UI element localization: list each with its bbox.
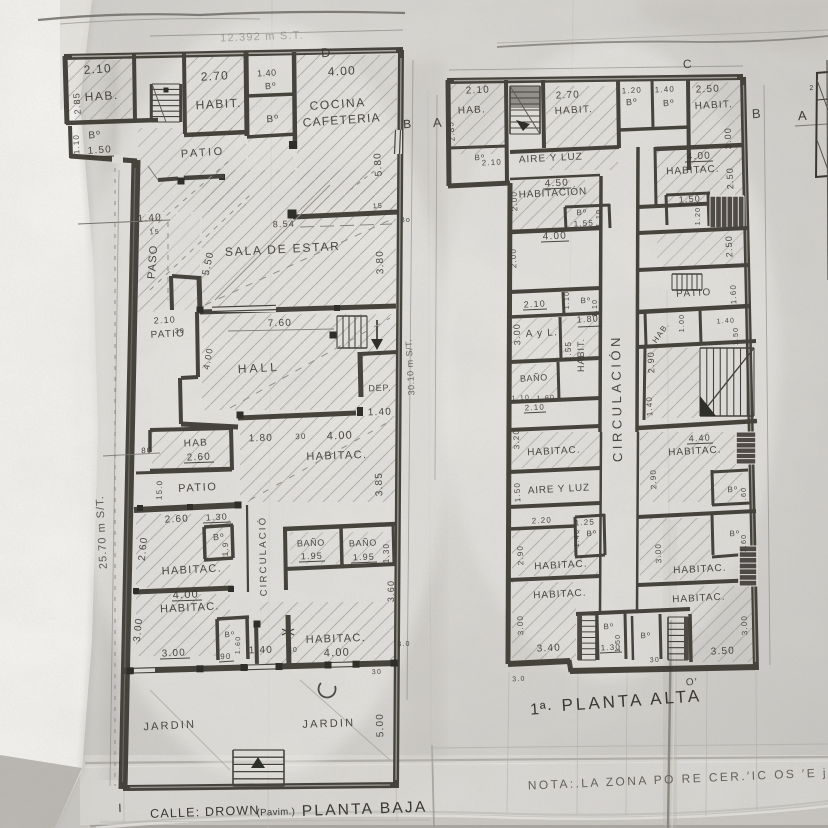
svg-text:1.10: 1.10 — [72, 134, 82, 155]
svg-text:1.50: 1.50 — [733, 327, 740, 345]
svg-text:1.40: 1.40 — [717, 318, 736, 326]
svg-text:HABIT.: HABIT. — [694, 99, 733, 112]
svg-text:Bº: Bº — [663, 98, 675, 109]
svg-text:Bº: Bº — [580, 296, 591, 306]
svg-text:BAÑO: BAÑO — [349, 538, 377, 549]
svg-text:2.50: 2.50 — [695, 83, 720, 95]
svg-text:Bº: Bº — [265, 81, 277, 92]
svg-text:1.40: 1.40 — [137, 212, 162, 225]
svg-text:PASO: PASO — [146, 244, 160, 279]
svg-text:CIRCULACIÓ: CIRCULACIÓ — [257, 516, 269, 597]
svg-text:1ª·: 1ª· — [530, 700, 554, 719]
svg-text:3.40: 3.40 — [536, 642, 561, 654]
svg-text:HAB.: HAB. — [84, 88, 119, 104]
svg-text:3.00: 3.00 — [723, 127, 734, 150]
svg-text:Bº: Bº — [640, 631, 651, 641]
svg-text:1.40: 1.40 — [368, 407, 393, 419]
svg-text:1.60: 1.60 — [729, 284, 739, 305]
svg-text:30: 30 — [175, 328, 186, 336]
svg-text:3.00: 3.00 — [516, 615, 526, 636]
svg-text:Bº: Bº — [603, 622, 614, 632]
svg-text:2.70: 2.70 — [555, 89, 580, 101]
svg-text:2.60: 2.60 — [164, 513, 189, 525]
svg-text:1.80: 1.80 — [576, 313, 599, 324]
svg-text:3.80: 3.80 — [375, 250, 387, 275]
svg-text:Bº: Bº — [224, 630, 235, 640]
svg-text:2.50: 2.50 — [724, 235, 735, 258]
svg-text:CIRCULACIÓN: CIRCULACIÓN — [608, 334, 625, 462]
svg-text:1.60: 1.60 — [741, 487, 748, 505]
svg-text:30: 30 — [372, 669, 382, 676]
svg-text:Bº: Bº — [729, 529, 740, 539]
svg-text:1.30: 1.30 — [205, 511, 228, 522]
svg-text:15: 15 — [373, 203, 384, 211]
svg-text:JARDIN: JARDIN — [302, 717, 355, 731]
svg-text:BAÑO: BAÑO — [520, 372, 548, 383]
svg-text:1.60: 1.60 — [741, 534, 748, 552]
svg-text:3.00: 3.00 — [740, 615, 750, 636]
svg-text:2.70: 2.70 — [200, 68, 229, 83]
svg-text:Bº: Bº — [266, 114, 279, 126]
svg-text:3.85: 3.85 — [374, 472, 386, 497]
svg-text:1.10: 1.10 — [564, 291, 571, 309]
svg-text:B: B — [403, 117, 413, 131]
svg-text:2.90: 2.90 — [649, 469, 659, 490]
svg-text:4.00: 4.00 — [327, 430, 354, 443]
svg-text:7.60: 7.60 — [268, 318, 293, 330]
svg-text:HABIT.: HABIT. — [554, 104, 593, 117]
svg-text:1.10: 1.10 — [512, 395, 531, 403]
svg-text:15: 15 — [150, 229, 161, 237]
svg-text:B: B — [751, 106, 762, 121]
svg-text:3.00: 3.00 — [512, 323, 523, 346]
svg-text:8.54: 8.54 — [273, 219, 296, 230]
svg-text:D: D — [320, 45, 331, 61]
svg-text:BAÑO: BAÑO — [297, 538, 325, 549]
svg-text:3.0: 3.0 — [512, 676, 526, 684]
svg-text:3.0: 3.0 — [397, 641, 411, 648]
svg-text:1.00: 1.00 — [679, 314, 686, 332]
svg-text:30: 30 — [288, 647, 298, 654]
svg-text:2: 2 — [809, 85, 814, 92]
svg-text:A y L.: A y L. — [525, 327, 558, 340]
svg-text:30: 30 — [650, 657, 661, 665]
svg-text:HABITAC.: HABITAC. — [306, 449, 368, 463]
svg-text:1.40: 1.40 — [645, 396, 655, 417]
svg-text:1.40: 1.40 — [654, 84, 675, 94]
svg-text:2.10: 2.10 — [465, 84, 490, 96]
svg-text:1.10: 1.10 — [596, 209, 603, 227]
svg-text:A: A — [432, 115, 443, 130]
svg-text:2.10: 2.10 — [153, 314, 176, 325]
svg-text:3.60: 3.60 — [386, 580, 396, 602]
svg-text:3.20: 3.20 — [512, 429, 522, 450]
svg-text:3.00: 3.00 — [654, 543, 664, 564]
svg-text:3.50: 3.50 — [710, 645, 735, 657]
svg-text:Bº: Bº — [727, 485, 738, 495]
svg-text:1.60: 1.60 — [537, 395, 556, 403]
svg-text:1.40: 1.40 — [249, 645, 274, 657]
svg-text:15.0: 15.0 — [155, 480, 165, 501]
svg-text:1.55: 1.55 — [573, 218, 594, 228]
svg-text:(Pavim.): (Pavim.) — [256, 806, 295, 818]
svg-text:1.25: 1.25 — [574, 517, 595, 527]
svg-text:1.80: 1.80 — [249, 433, 274, 445]
svg-text:HAB: HAB — [184, 437, 209, 449]
svg-text:3o: 3o — [401, 217, 412, 225]
svg-text:1.20: 1.20 — [695, 207, 702, 225]
svg-text:HALL: HALL — [237, 360, 280, 376]
svg-text:1.95: 1.95 — [353, 552, 376, 563]
svg-text:2.10: 2.10 — [524, 402, 545, 412]
svg-text:1.60: 1.60 — [235, 636, 243, 655]
svg-text:2.55: 2.55 — [564, 341, 573, 361]
svg-text:2.90: 2.90 — [516, 545, 526, 566]
svg-text:1.50: 1.50 — [678, 193, 701, 204]
svg-text:Bº: Bº — [88, 130, 101, 142]
svg-text:1.30: 1.30 — [600, 642, 621, 652]
svg-text:1.40: 1.40 — [257, 67, 277, 78]
svg-text:PATIO: PATIO — [178, 481, 218, 495]
svg-text:PATIO: PATIO — [676, 287, 712, 300]
svg-text:1.50: 1.50 — [87, 144, 112, 157]
svg-text:1.20: 1.20 — [621, 85, 642, 95]
svg-text:1.30: 1.30 — [382, 543, 391, 563]
svg-text:2.85: 2.85 — [446, 121, 456, 142]
svg-text:DEP.: DEP. — [368, 383, 391, 394]
svg-text:A: A — [797, 108, 808, 123]
svg-text:4.40: 4.40 — [688, 432, 711, 443]
svg-text:2.00: 2.00 — [509, 248, 519, 269]
svg-text:2.90: 2.90 — [646, 351, 657, 374]
svg-text:2.00: 2.00 — [510, 191, 520, 212]
svg-text:HABIT.: HABIT. — [576, 338, 586, 372]
svg-text:5.80: 5.80 — [372, 152, 385, 177]
svg-text:2.20: 2.20 — [531, 515, 552, 525]
svg-text:1.40: 1.40 — [574, 529, 581, 547]
svg-text:Bº: Bº — [586, 529, 597, 539]
svg-text:Bº: Bº — [213, 532, 225, 543]
svg-text:HAB.: HAB. — [458, 104, 487, 116]
svg-text:2.10: 2.10 — [83, 61, 112, 77]
svg-text:Bº: Bº — [576, 208, 587, 218]
svg-text:2.10: 2.10 — [481, 157, 502, 167]
svg-text:I: I — [118, 801, 122, 815]
svg-text:90: 90 — [220, 652, 232, 662]
svg-text:HABITAC.: HABITAC. — [306, 632, 367, 646]
svg-text:Bº: Bº — [626, 97, 638, 108]
svg-text:2.85: 2.85 — [71, 92, 83, 115]
svg-text:5.00: 5.00 — [375, 713, 387, 738]
svg-text:2.10: 2.10 — [523, 298, 546, 309]
svg-text:4.00: 4.00 — [324, 647, 351, 660]
svg-text:2.50: 2.50 — [725, 167, 736, 190]
svg-text:4.00: 4.00 — [327, 63, 356, 78]
svg-text:C: C — [682, 57, 693, 71]
svg-text:30: 30 — [295, 432, 307, 441]
svg-text:1.50: 1.50 — [513, 482, 523, 503]
svg-text:1.9: 1.9 — [221, 541, 231, 556]
svg-text:1.95: 1.95 — [301, 551, 324, 562]
svg-text:HABIT.: HABIT. — [195, 96, 242, 112]
